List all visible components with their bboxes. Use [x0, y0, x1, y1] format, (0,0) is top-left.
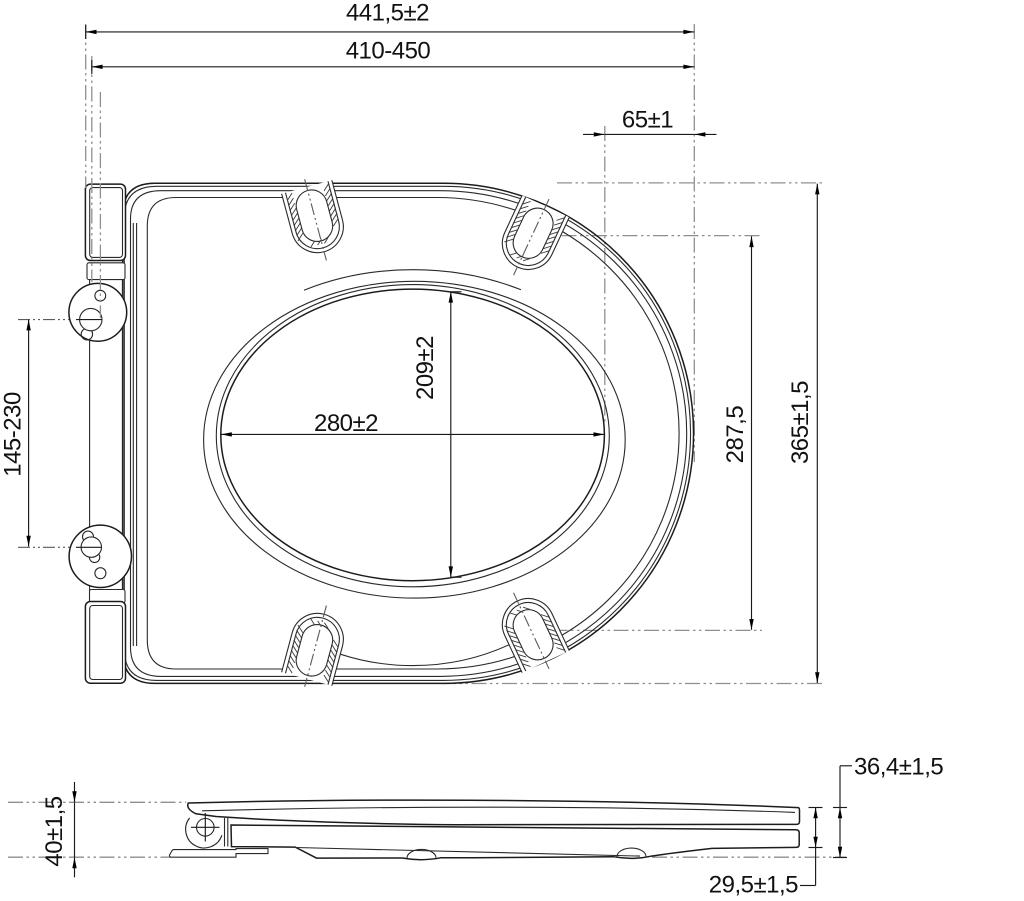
svg-text:280±2: 280±2 [314, 410, 378, 437]
svg-text:40±1,5: 40±1,5 [41, 796, 68, 866]
svg-text:145-230: 145-230 [0, 392, 27, 477]
svg-text:29,5±1,5: 29,5±1,5 [709, 872, 798, 899]
svg-text:287,5: 287,5 [722, 406, 749, 464]
svg-text:365±1,5: 365±1,5 [787, 381, 814, 464]
svg-text:441,5±2: 441,5±2 [346, 0, 429, 27]
svg-text:65±1: 65±1 [622, 107, 673, 134]
svg-text:36,4±1,5: 36,4±1,5 [854, 754, 943, 781]
svg-text:410-450: 410-450 [346, 38, 431, 65]
svg-text:209±2: 209±2 [412, 336, 439, 400]
